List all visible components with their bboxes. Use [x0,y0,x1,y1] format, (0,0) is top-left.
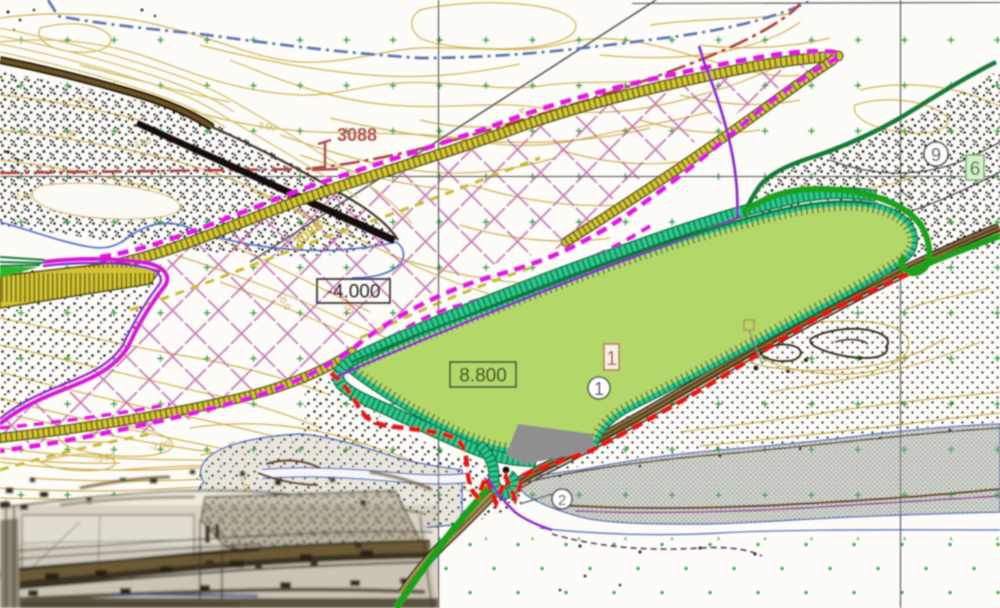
svg-text:2: 2 [558,492,566,509]
svg-text:-4.000: -4.000 [327,282,381,303]
svg-text:8.800: 8.800 [459,366,507,387]
svg-text:6: 6 [970,159,981,180]
svg-text:1: 1 [606,348,617,370]
svg-text:1: 1 [594,379,604,399]
svg-text:3088: 3088 [337,125,377,145]
svg-text:9: 9 [931,145,941,165]
